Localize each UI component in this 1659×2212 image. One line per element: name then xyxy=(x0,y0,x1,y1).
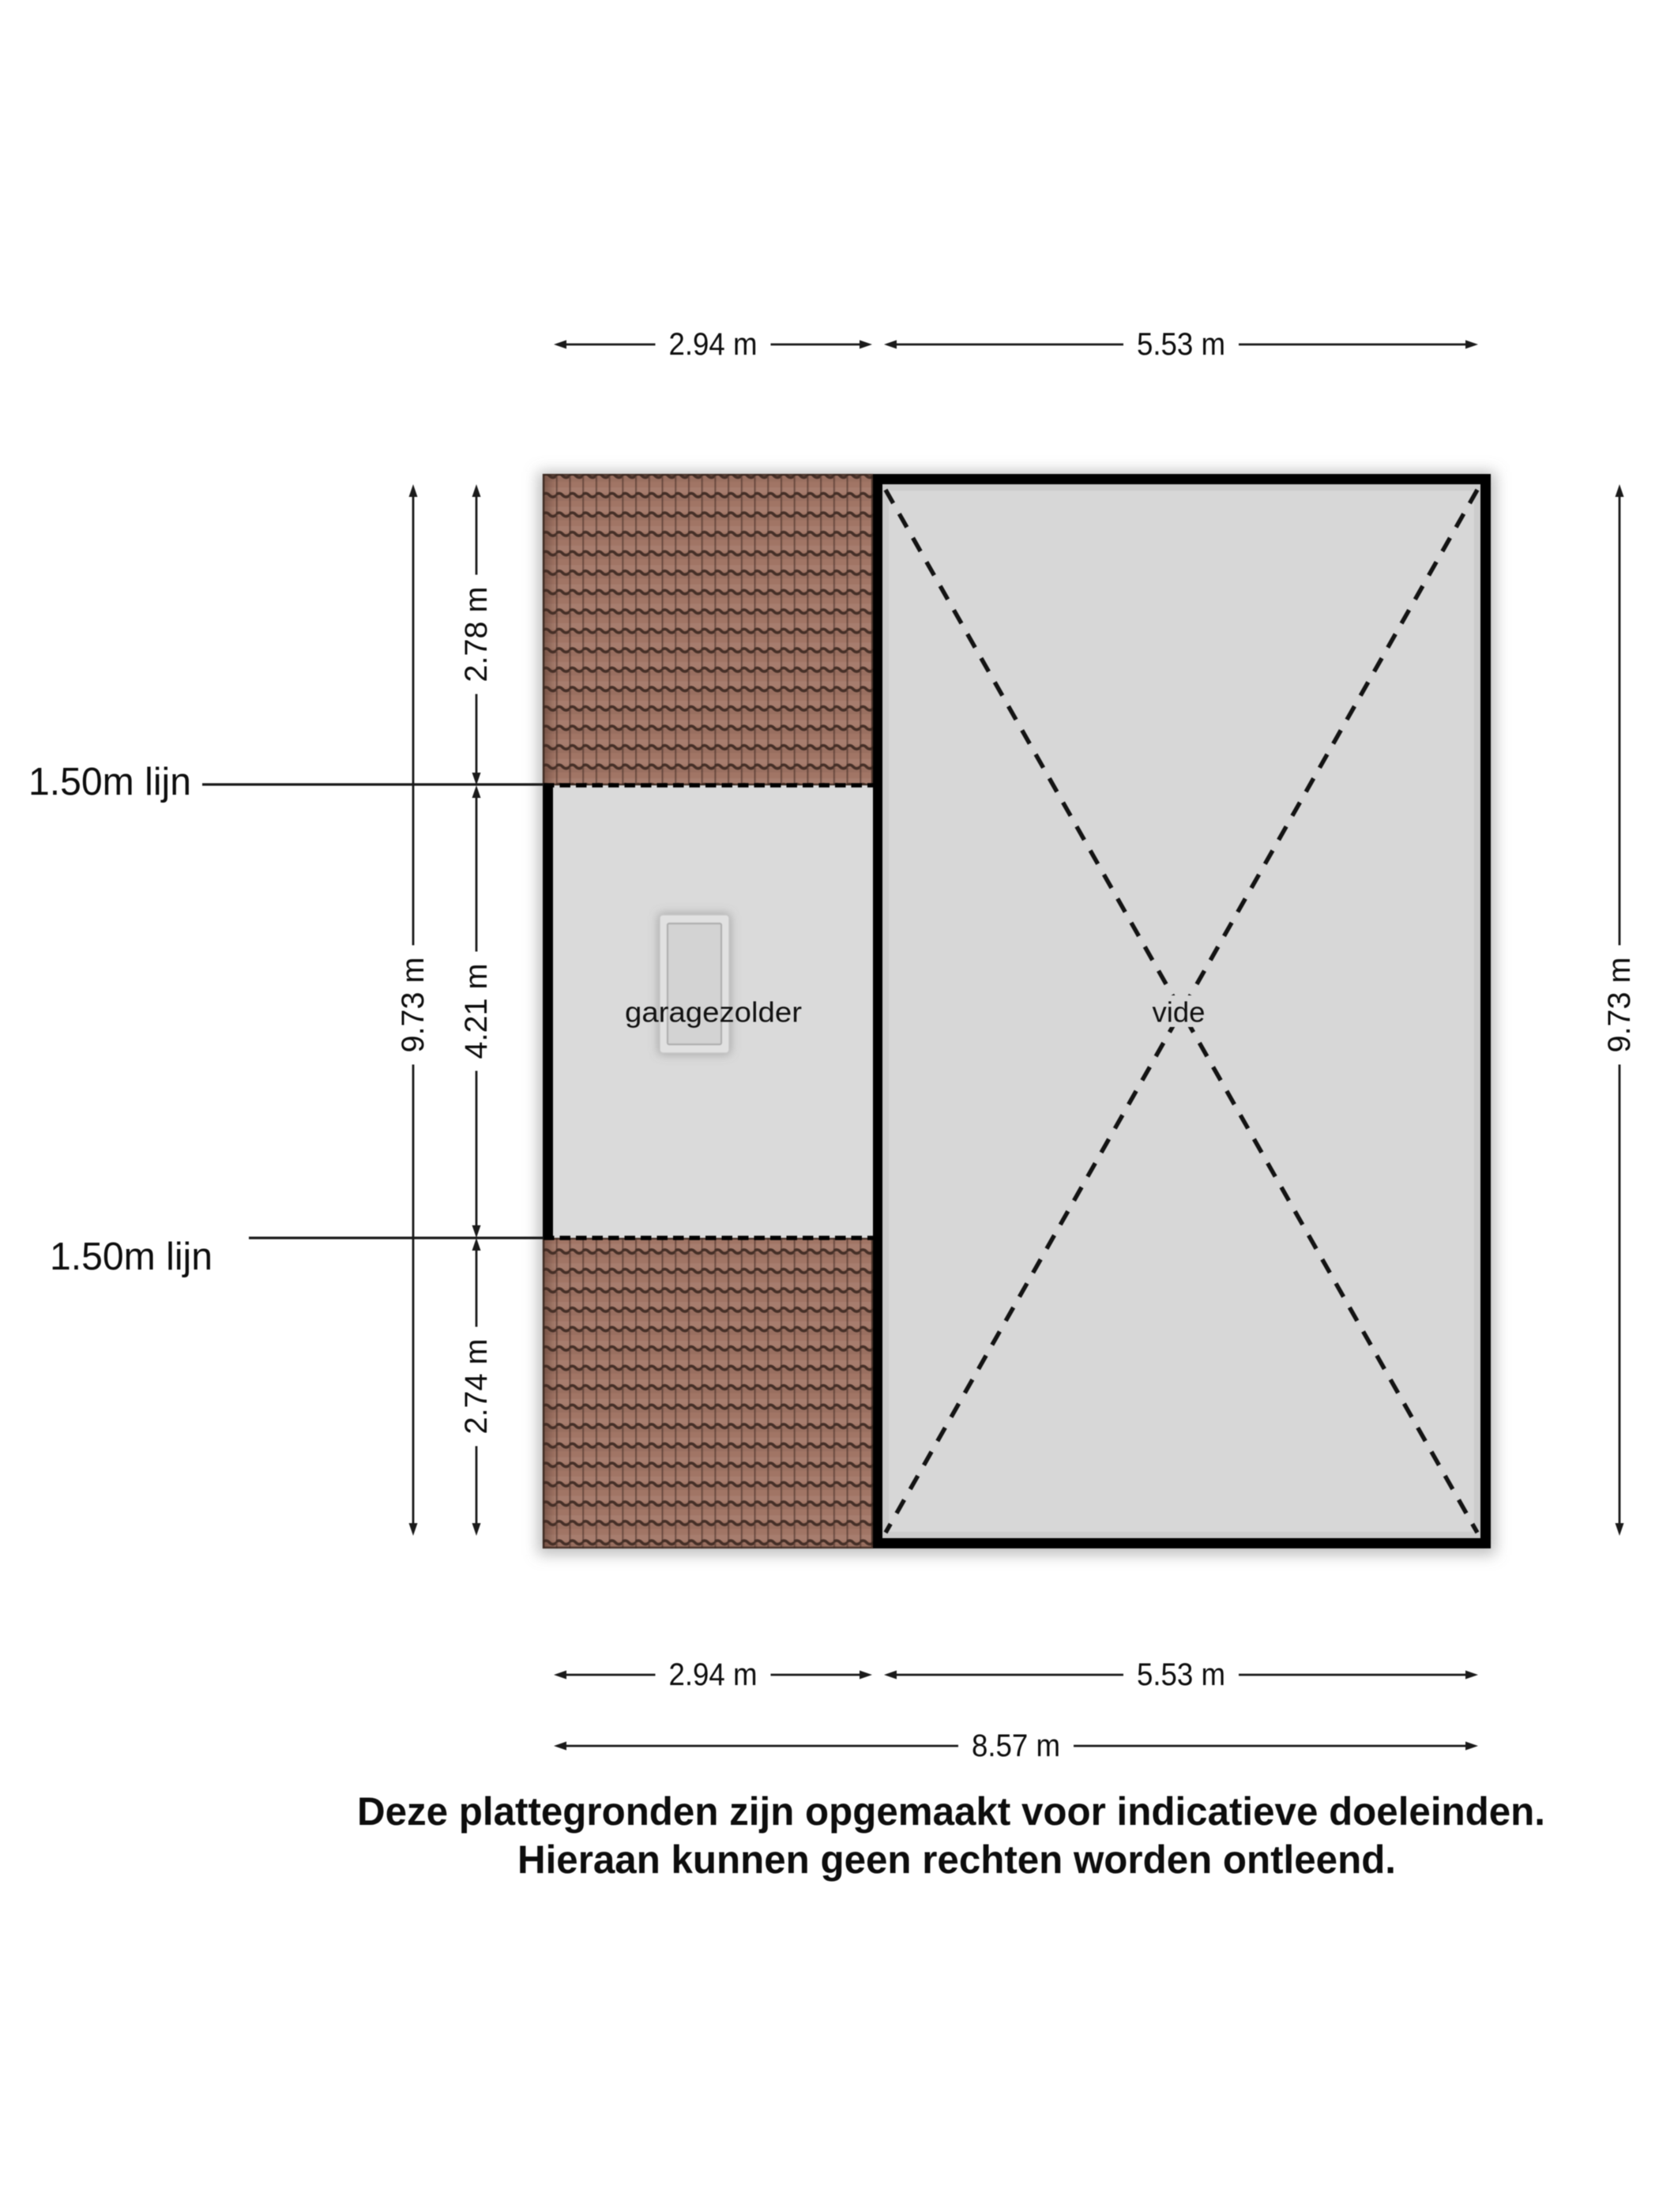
svg-text:9.73 m: 9.73 m xyxy=(1602,957,1637,1053)
svg-text:2.74 m: 2.74 m xyxy=(459,1339,494,1435)
svg-text:4.21 m: 4.21 m xyxy=(459,964,494,1059)
svg-text:vide: vide xyxy=(1153,996,1206,1029)
svg-text:8.57 m: 8.57 m xyxy=(972,1729,1060,1763)
svg-text:2.94 m: 2.94 m xyxy=(669,1657,758,1692)
svg-text:9.73 m: 9.73 m xyxy=(396,957,431,1053)
svg-text:5.53 m: 5.53 m xyxy=(1137,327,1225,362)
svg-text:2.78 m: 2.78 m xyxy=(459,587,494,683)
svg-text:2.94 m: 2.94 m xyxy=(669,327,758,362)
svg-text:1.50m lijn: 1.50m lijn xyxy=(28,761,191,803)
svg-text:1.50m lijn: 1.50m lijn xyxy=(50,1236,213,1278)
svg-text:garagezolder: garagezolder xyxy=(625,996,802,1029)
svg-text:5.53 m: 5.53 m xyxy=(1137,1657,1225,1692)
svg-text:Deze plattegronden zijn opgema: Deze plattegronden zijn opgemaakt voor i… xyxy=(357,1789,1545,1834)
svg-text:Hieraan kunnen geen rechten wo: Hieraan kunnen geen rechten worden ontle… xyxy=(517,1838,1396,1882)
